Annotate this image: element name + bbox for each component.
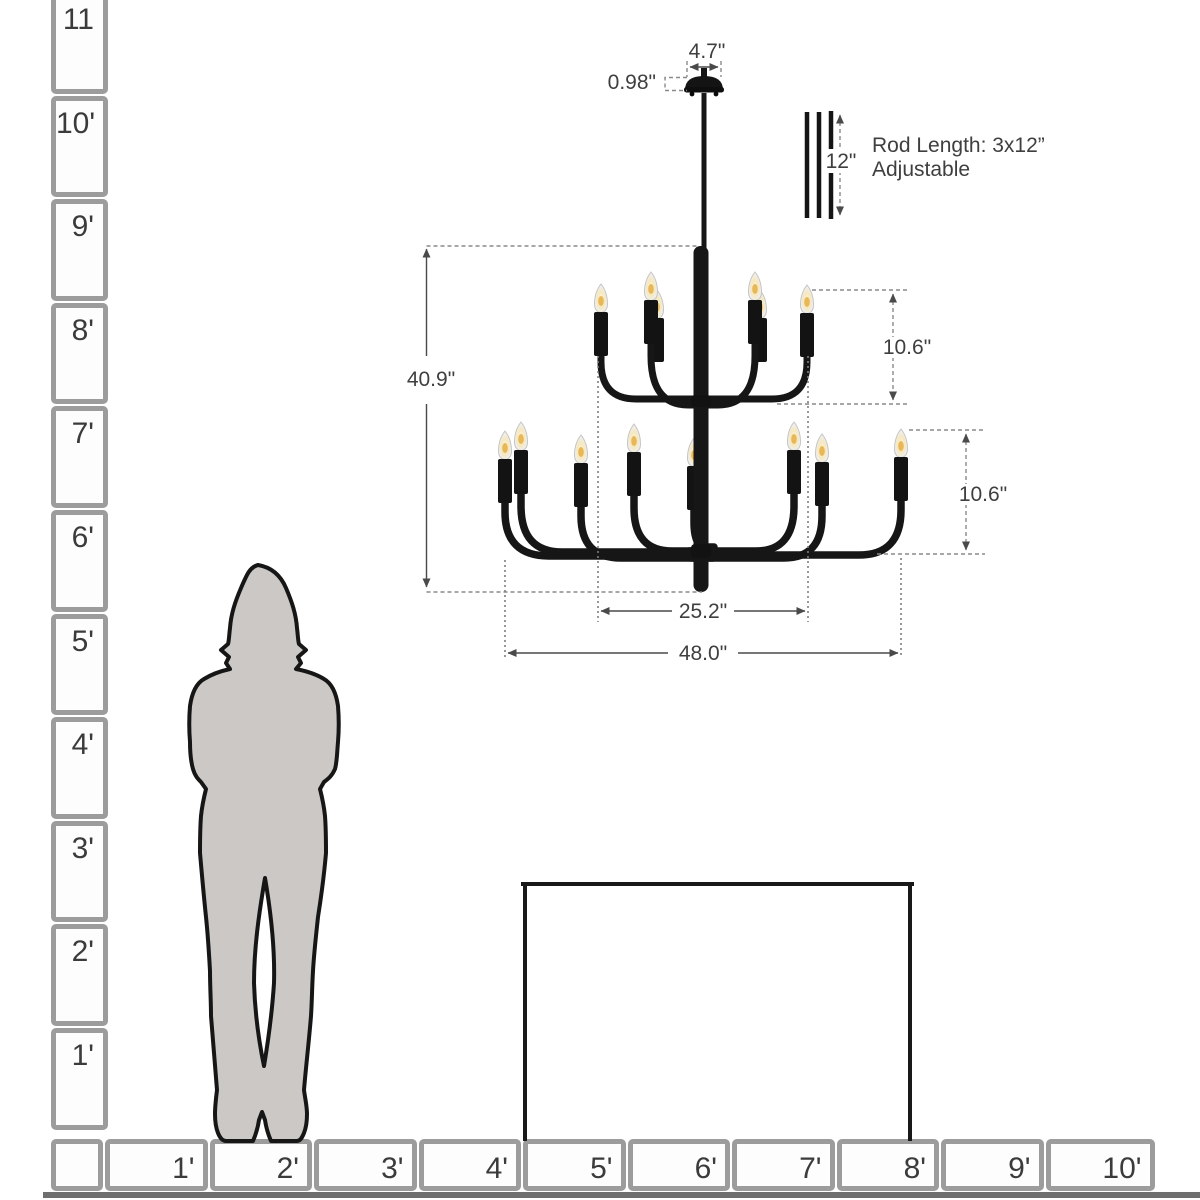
candle-light [815,434,829,506]
candle-light [514,422,528,494]
hanging-rod [702,93,707,249]
candle-light [574,435,588,507]
diagram-scene: 4.7" 0.98" 12" Rod Length: 3x12” Adjusta… [0,0,1200,1200]
human-silhouette [189,565,339,1141]
rod-note-line1: Rod Length: 3x12” [872,134,1045,157]
candle-light [627,424,641,496]
candle-light [787,422,801,494]
dimension-diagram: 11 10' 9' 8' 7' 6' 5' 4' 3' 2' 1' 1' 2' … [0,0,1200,1200]
candle-light [894,429,908,501]
canopy-width-label: 4.7" [689,40,726,63]
candle-light [748,272,762,344]
upper-tier-height-label: 10.6" [883,336,931,359]
candle-light [800,285,814,357]
ceiling-canopy [684,68,724,96]
lower-hub-collar [691,544,711,558]
chandelier [498,68,908,592]
center-column [694,246,709,592]
candle-light [644,272,658,344]
lower-tier-height-label: 10.6" [959,483,1007,506]
dimension-labels: 4.7" 0.98" 12" Rod Length: 3x12” Adjusta… [407,40,1045,665]
candle-light [594,284,608,356]
rod-length-label: 12" [826,150,857,173]
upper-hub-collar [691,395,711,407]
upper-tier-width-label: 25.2" [679,600,727,623]
fixture-width-label: 48.0" [679,642,727,665]
fixture-height-label: 40.9" [407,368,455,391]
canopy-height-label: 0.98" [608,71,656,94]
table-outline [521,884,914,1141]
candle-light [498,431,512,503]
rod-note-line2: Adjustable [872,158,970,181]
